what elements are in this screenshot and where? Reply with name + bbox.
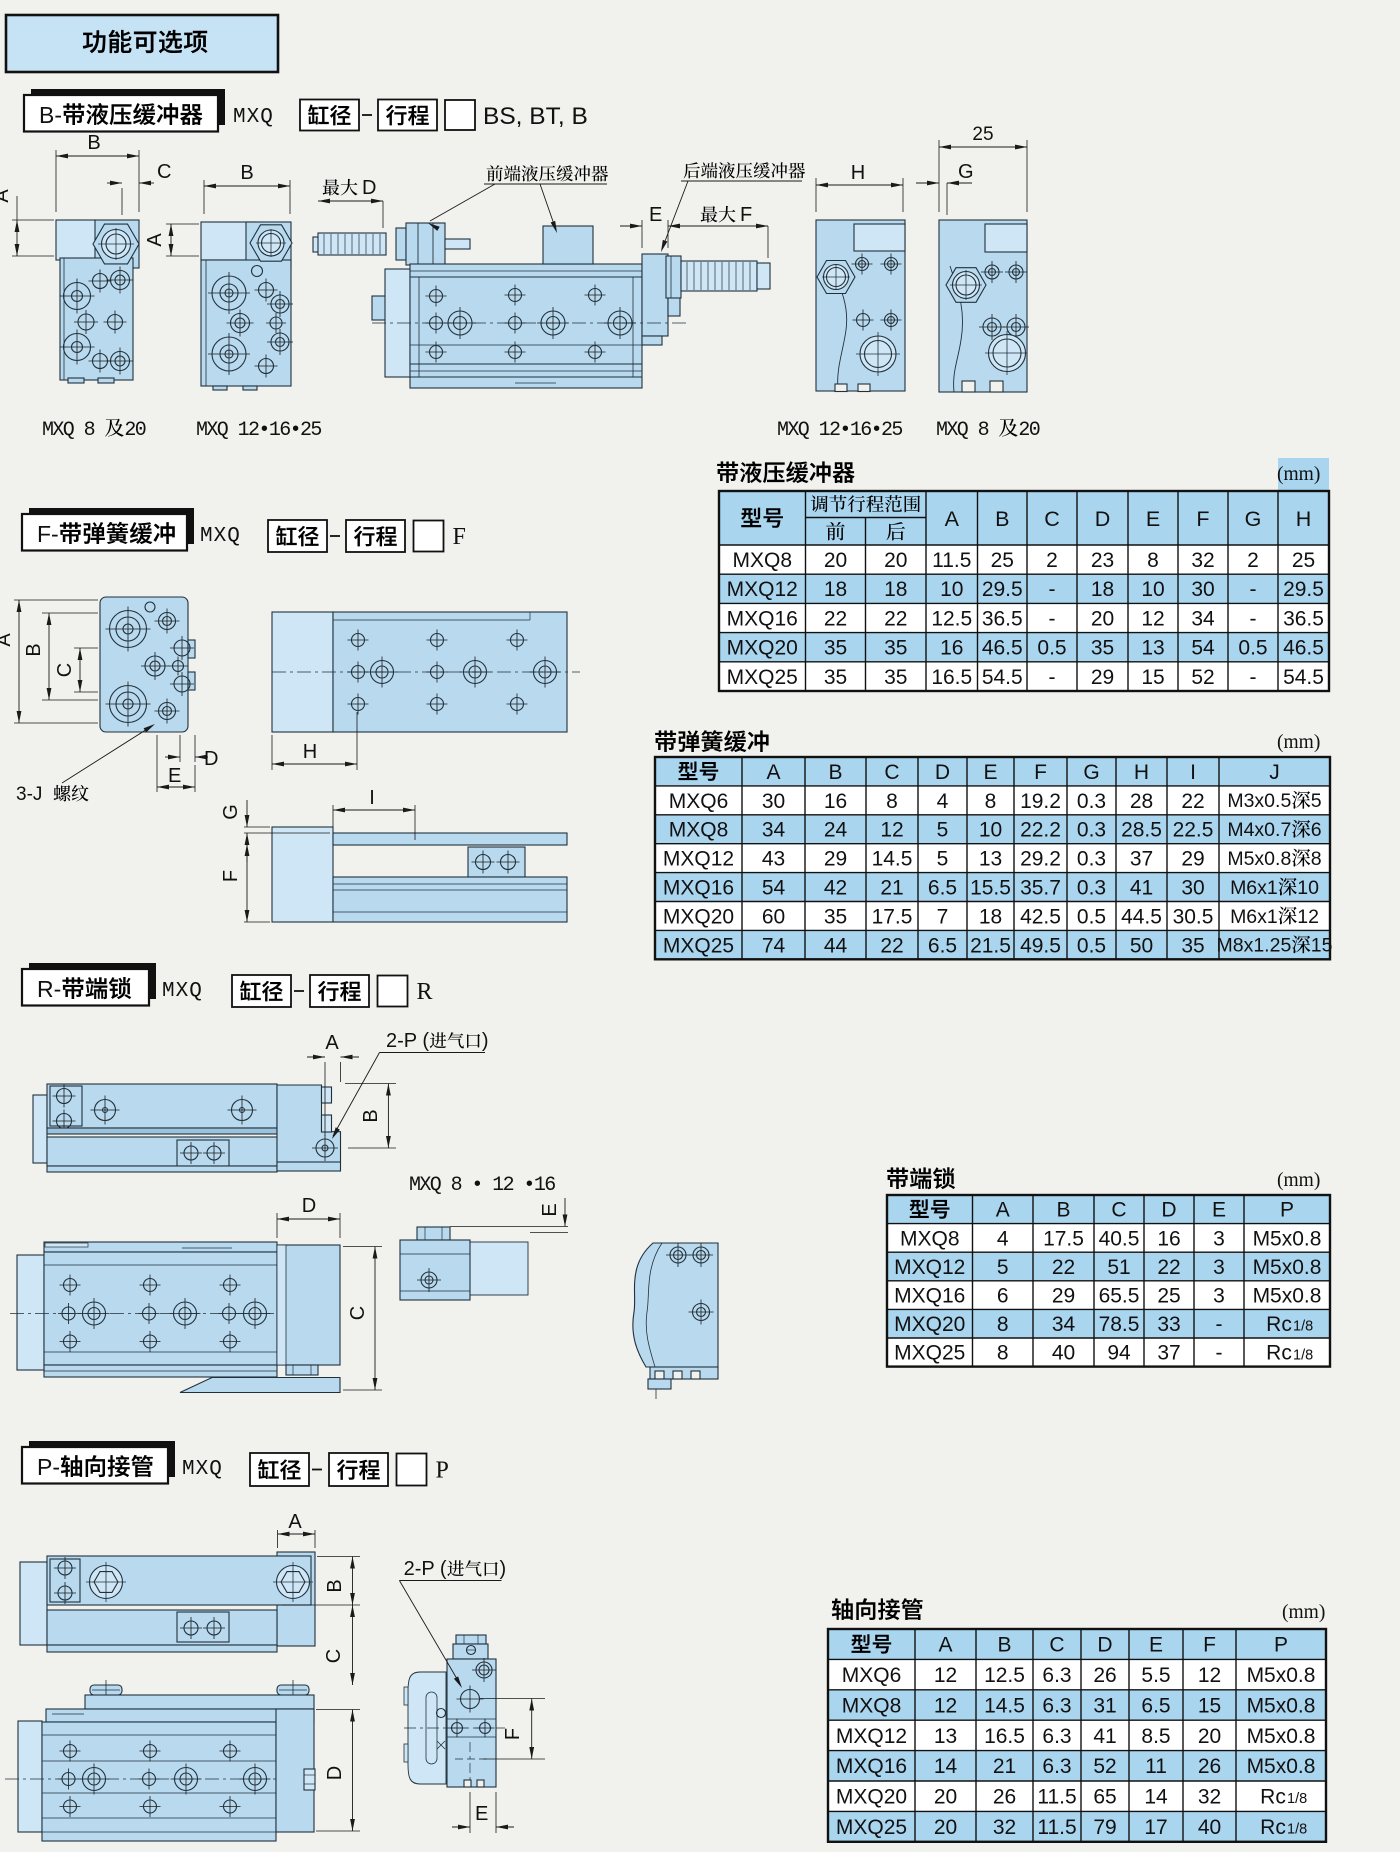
svg-text:16: 16 [1157,1227,1180,1250]
svg-text:8: 8 [985,790,997,813]
svg-text:20: 20 [824,549,847,572]
svg-text:42.5: 42.5 [1020,905,1061,928]
svg-text:MXQ8: MXQ8 [732,549,792,572]
svg-text:H: H [303,741,317,763]
svg-text:0.3: 0.3 [1077,819,1106,842]
svg-text:B: B [87,132,100,154]
svg-text:46.5: 46.5 [1283,637,1324,660]
svg-text:A: A [0,189,13,203]
svg-text:M4x0.7: M4x0.7 [1227,819,1291,841]
svg-text:B: B [1056,1199,1070,1222]
svg-text:D: D [1161,1199,1176,1222]
svg-text:M8x1.25: M8x1.25 [1217,935,1292,957]
svg-text:24: 24 [824,819,848,842]
svg-text:0.5: 0.5 [1037,637,1066,660]
svg-text:18: 18 [979,905,1002,928]
svg-text:30.5: 30.5 [1173,905,1214,928]
svg-text:28: 28 [1130,790,1153,813]
svg-text:42: 42 [824,876,847,899]
svg-text:5: 5 [1311,790,1322,812]
svg-text:MXQ: MXQ [162,980,203,1003]
svg-text:A: A [766,761,780,784]
svg-text:D: D [324,1766,346,1780]
svg-text:1/8: 1/8 [1287,1822,1307,1838]
svg-text:26: 26 [1198,1755,1221,1778]
svg-text:49.5: 49.5 [1020,934,1061,957]
svg-text:MXQ12: MXQ12 [894,1256,965,1279]
svg-text:13: 13 [1141,637,1164,660]
svg-text:MXQ 8 • 12 •16: MXQ 8 • 12 •16 [409,1174,555,1197]
svg-text:35.7: 35.7 [1020,876,1061,899]
svg-text:79: 79 [1093,1816,1116,1839]
svg-text:A: A [0,633,15,647]
svg-text:C: C [1111,1199,1126,1222]
svg-text:5.5: 5.5 [1141,1664,1170,1687]
svg-text:R-: R- [37,976,61,1002]
svg-text:16.5: 16.5 [931,666,972,689]
svg-text:2-P (: 2-P ( [404,1558,447,1580]
svg-text:41: 41 [1130,876,1153,899]
svg-text:17: 17 [1144,1816,1167,1839]
svg-text:MXQ25: MXQ25 [727,666,798,689]
svg-text:22: 22 [1181,790,1204,813]
svg-text:H: H [851,162,865,184]
svg-text:MXQ16: MXQ16 [894,1285,965,1308]
svg-text:32: 32 [1191,549,1214,572]
svg-text:10: 10 [1297,877,1319,899]
svg-text:E: E [475,1803,488,1825]
svg-text:MXQ6: MXQ6 [842,1664,902,1687]
svg-text:5: 5 [997,1256,1009,1279]
svg-text:(mm): (mm) [1282,1602,1325,1623]
svg-text:40: 40 [1052,1342,1075,1365]
svg-text:16: 16 [940,637,963,660]
svg-text:M5x0.8: M5x0.8 [1253,1227,1322,1250]
svg-text:11.5: 11.5 [1037,1786,1076,1809]
svg-text:MXQ16: MXQ16 [727,607,798,630]
svg-text:12: 12 [1141,607,1164,630]
svg-text:D: D [1097,1634,1112,1657]
svg-text:30: 30 [1181,876,1204,899]
svg-text:F: F [1203,1634,1216,1657]
svg-text:A: A [938,1634,952,1657]
svg-text:MXQ 8: MXQ 8 [42,419,95,442]
svg-text:F: F [740,204,752,226]
svg-text:D: D [204,748,218,770]
svg-text:12.5: 12.5 [984,1664,1025,1687]
svg-text:-: - [1250,666,1257,689]
svg-text:G: G [1083,761,1099,784]
svg-text:29: 29 [1181,848,1204,871]
svg-text:29: 29 [1052,1285,1075,1308]
svg-text:20: 20 [934,1816,957,1839]
svg-text:10: 10 [940,578,963,601]
svg-text:4: 4 [997,1227,1009,1250]
svg-text:44: 44 [824,934,848,957]
svg-text:2: 2 [1046,549,1058,572]
svg-text:51: 51 [1107,1256,1130,1279]
svg-text:20: 20 [884,549,907,572]
svg-text:MXQ20: MXQ20 [663,905,734,928]
svg-text:C: C [157,161,171,183]
svg-text:MXQ: MXQ [233,106,274,129]
svg-text:32: 32 [993,1816,1016,1839]
svg-text:10: 10 [1141,578,1164,601]
svg-text:M5x0.8: M5x0.8 [1247,1694,1316,1717]
svg-text:0.3: 0.3 [1077,790,1106,813]
svg-text:MXQ25: MXQ25 [663,934,734,957]
svg-text:60: 60 [762,905,785,928]
svg-text:18: 18 [824,578,847,601]
svg-text:A: A [288,1511,302,1533]
svg-text:2-P (: 2-P ( [386,1030,429,1052]
svg-text:F: F [1196,507,1209,531]
svg-text:M3x0.5: M3x0.5 [1227,790,1291,812]
svg-text:): ) [482,1030,489,1052]
svg-text:15: 15 [1141,666,1164,689]
svg-text:54.5: 54.5 [982,666,1023,689]
svg-text:20: 20 [1091,607,1114,630]
svg-text:22: 22 [1052,1256,1075,1279]
svg-text:D: D [1095,507,1111,531]
svg-text:33: 33 [1157,1313,1180,1336]
svg-text:E: E [1212,1199,1226,1222]
svg-text:B: B [828,761,842,784]
svg-text:A: A [144,233,166,247]
svg-text:25: 25 [1157,1285,1180,1308]
svg-text:19.2: 19.2 [1020,790,1061,813]
svg-text:28.5: 28.5 [1121,819,1162,842]
svg-text:6.3: 6.3 [1042,1694,1071,1717]
svg-text:H: H [1296,507,1312,531]
svg-text:1/8: 1/8 [1293,1347,1313,1363]
svg-text:-: - [1049,666,1056,689]
svg-text:25: 25 [1292,549,1315,572]
svg-text:8: 8 [997,1342,1009,1365]
svg-text:18: 18 [884,578,907,601]
svg-text:10: 10 [979,819,1002,842]
svg-text:17.5: 17.5 [1043,1227,1084,1250]
svg-text:21: 21 [880,876,903,899]
svg-text:29: 29 [1091,666,1114,689]
svg-text:12.5: 12.5 [931,607,972,630]
svg-text:-: - [1216,1342,1223,1365]
svg-text:MXQ20: MXQ20 [727,637,798,660]
svg-text:F: F [453,524,466,550]
svg-text:E: E [539,1203,561,1216]
svg-text:31: 31 [1093,1694,1116,1717]
svg-text:54.5: 54.5 [1283,666,1324,689]
svg-text:1/8: 1/8 [1293,1319,1313,1335]
svg-text:65.5: 65.5 [1099,1285,1140,1308]
svg-text:3: 3 [1213,1227,1225,1250]
svg-text:F-: F- [37,521,59,547]
svg-text:11.5: 11.5 [1037,1816,1076,1839]
svg-text:14: 14 [934,1755,958,1778]
svg-text:20: 20 [124,419,145,442]
svg-text:43: 43 [762,848,785,871]
svg-text:40.5: 40.5 [1099,1227,1140,1250]
svg-text:0.5: 0.5 [1077,934,1106,957]
svg-text:26: 26 [993,1786,1016,1809]
svg-text:16.5: 16.5 [984,1725,1025,1748]
svg-text:65: 65 [1093,1786,1116,1809]
svg-text:R: R [417,979,433,1005]
svg-text:M5x0.8: M5x0.8 [1253,1256,1322,1279]
svg-text:8: 8 [997,1313,1009,1336]
svg-text:MXQ 8: MXQ 8 [936,419,989,442]
svg-text:0.5: 0.5 [1077,905,1106,928]
svg-text:BS, BT, B: BS, BT, B [483,103,588,130]
svg-text:36.5: 36.5 [1283,607,1324,630]
svg-text:C: C [54,663,76,677]
svg-text:P: P [1274,1634,1288,1657]
svg-text:14.5: 14.5 [984,1694,1025,1717]
svg-text:35: 35 [884,666,907,689]
svg-text:MXQ8: MXQ8 [842,1694,902,1717]
svg-text:8: 8 [1147,549,1159,572]
svg-text:6.3: 6.3 [1042,1664,1071,1687]
svg-text:MXQ12: MXQ12 [727,578,798,601]
svg-text:6.5: 6.5 [928,934,957,957]
svg-text:5: 5 [937,819,949,842]
svg-text:35: 35 [824,905,847,928]
svg-text:32: 32 [1198,1786,1221,1809]
svg-text:12: 12 [934,1694,957,1717]
svg-text:35: 35 [884,637,907,660]
svg-text:21.5: 21.5 [970,934,1011,957]
svg-text:C: C [347,1306,369,1320]
svg-text:13: 13 [934,1725,957,1748]
svg-text:25: 25 [991,549,1014,572]
svg-text:6: 6 [997,1285,1009,1308]
svg-text:MXQ25: MXQ25 [836,1816,907,1839]
svg-text:E: E [1149,1634,1163,1657]
svg-text:B: B [324,1579,346,1592]
svg-text:MXQ16: MXQ16 [663,876,734,899]
svg-text:Rc: Rc [1266,1313,1292,1336]
svg-text:8.5: 8.5 [1141,1725,1170,1748]
svg-text:M5x0.8: M5x0.8 [1247,1725,1316,1748]
svg-text:34: 34 [1191,607,1215,630]
svg-text:18: 18 [1091,578,1114,601]
svg-text:B-: B- [39,102,62,128]
svg-text:35: 35 [1181,934,1204,957]
svg-text:94: 94 [1107,1342,1131,1365]
svg-text:12: 12 [880,819,903,842]
svg-text:54: 54 [1191,637,1215,660]
svg-text:H: H [1134,761,1149,784]
svg-text:74: 74 [762,934,786,957]
svg-text:25: 25 [972,124,993,145]
svg-text:-: - [1049,607,1056,630]
svg-text:6.3: 6.3 [1042,1725,1071,1748]
svg-text:26: 26 [1093,1664,1116,1687]
svg-text:20: 20 [934,1786,957,1809]
svg-text:MXQ: MXQ [182,1458,223,1481]
svg-text:C: C [1044,507,1060,531]
svg-text:0.3: 0.3 [1077,876,1106,899]
svg-text:G: G [1245,507,1262,531]
svg-text:E: E [649,204,662,226]
svg-text:29.5: 29.5 [982,578,1023,601]
svg-text:35: 35 [1091,637,1114,660]
svg-text:29: 29 [824,848,847,871]
svg-text:M5x0.8: M5x0.8 [1247,1664,1316,1687]
svg-text:B: B [240,162,253,184]
svg-text:P: P [436,1458,449,1484]
svg-text:13: 13 [979,848,1002,871]
svg-text:B: B [997,1634,1011,1657]
svg-text:30: 30 [1191,578,1214,601]
svg-text:11: 11 [1145,1755,1167,1778]
svg-text:40: 40 [1198,1816,1221,1839]
svg-text:A: A [945,507,960,531]
svg-text:G: G [220,804,242,820]
svg-text:C: C [1049,1634,1064,1657]
svg-text:29.5: 29.5 [1283,578,1324,601]
svg-text:M5x0.8: M5x0.8 [1253,1285,1322,1308]
svg-text:MXQ 12•16•25: MXQ 12•16•25 [777,419,902,442]
svg-text:14.5: 14.5 [872,848,913,871]
svg-text:34: 34 [1052,1313,1076,1336]
svg-text:M5x0.8: M5x0.8 [1227,848,1291,870]
svg-text:2: 2 [1247,549,1259,572]
svg-text:0.5: 0.5 [1238,637,1267,660]
svg-text:D: D [302,1195,316,1217]
svg-text:-: - [1049,578,1056,601]
svg-text:-: - [1250,578,1257,601]
svg-text:6.5: 6.5 [928,876,957,899]
svg-text:A: A [325,1032,339,1054]
svg-text:I: I [1190,761,1196,784]
svg-text:8: 8 [886,790,898,813]
svg-text:12: 12 [934,1664,957,1687]
svg-text:MXQ25: MXQ25 [894,1342,965,1365]
svg-text:E: E [1146,507,1160,531]
svg-text:MXQ8: MXQ8 [900,1227,960,1250]
svg-text:3-J: 3-J [16,784,42,805]
svg-text:23: 23 [1091,549,1114,572]
svg-text:MXQ16: MXQ16 [836,1755,907,1778]
svg-text:30: 30 [762,790,785,813]
svg-text:54: 54 [762,876,786,899]
svg-text:Rc: Rc [1266,1342,1292,1365]
svg-text:6: 6 [1311,819,1322,841]
svg-text:46.5: 46.5 [982,637,1023,660]
svg-text:22: 22 [880,934,903,957]
svg-text:I: I [369,787,375,809]
svg-text:Rc: Rc [1260,1786,1286,1809]
svg-text:E: E [168,765,181,787]
svg-text:MXQ12: MXQ12 [836,1725,907,1748]
svg-text:6.5: 6.5 [1141,1694,1170,1717]
svg-text:B: B [360,1109,382,1122]
svg-text:MXQ6: MXQ6 [669,790,729,813]
svg-text:): ) [499,1558,506,1580]
svg-text:1/8: 1/8 [1287,1791,1307,1807]
svg-text:3: 3 [1213,1285,1225,1308]
svg-text:(mm): (mm) [1277,1170,1320,1191]
svg-text:MXQ20: MXQ20 [894,1313,965,1336]
svg-text:16: 16 [824,790,847,813]
svg-text:22: 22 [1157,1256,1180,1279]
svg-text:21: 21 [993,1755,1016,1778]
svg-text:37: 37 [1157,1342,1180,1365]
svg-text:MXQ20: MXQ20 [836,1786,907,1809]
svg-text:20: 20 [1018,419,1039,442]
svg-text:50: 50 [1130,934,1153,957]
svg-text:(mm): (mm) [1277,464,1320,485]
svg-text:44.5: 44.5 [1121,905,1162,928]
svg-text:11.5: 11.5 [932,549,971,572]
svg-text:C: C [884,761,899,784]
svg-text:41: 41 [1093,1725,1116,1748]
svg-text:22.5: 22.5 [1173,819,1214,842]
svg-text:M6x1: M6x1 [1230,906,1278,928]
svg-text:22: 22 [884,607,907,630]
svg-text:MXQ12: MXQ12 [663,848,734,871]
svg-text:12: 12 [1297,906,1319,928]
svg-text:7: 7 [937,905,949,928]
svg-text:20: 20 [1198,1725,1221,1748]
svg-text:29.2: 29.2 [1020,848,1061,871]
svg-text:15: 15 [1311,935,1333,957]
svg-text:Rc: Rc [1260,1816,1286,1839]
svg-text:52: 52 [1191,666,1214,689]
svg-text:J: J [1269,761,1280,784]
svg-text:22: 22 [824,607,847,630]
svg-text:MXQ 12•16•25: MXQ 12•16•25 [196,419,321,442]
svg-text:M6x1: M6x1 [1230,877,1278,899]
svg-text:8: 8 [1311,848,1322,870]
svg-text:-: - [1250,607,1257,630]
svg-text:M5x0.8: M5x0.8 [1247,1755,1316,1778]
svg-text:3: 3 [1213,1256,1225,1279]
svg-text:52: 52 [1093,1755,1116,1778]
svg-text:B: B [23,643,45,656]
svg-text:F: F [220,870,242,882]
svg-text:36.5: 36.5 [982,607,1023,630]
svg-text:(mm): (mm) [1277,732,1320,753]
svg-text:78.5: 78.5 [1099,1313,1140,1336]
svg-text:P: P [1280,1199,1294,1222]
svg-text:35: 35 [824,666,847,689]
svg-text:E: E [983,761,997,784]
svg-text:MXQ: MXQ [200,525,241,548]
svg-text:0.3: 0.3 [1077,848,1106,871]
svg-text:F: F [502,1728,524,1740]
svg-text:G: G [958,161,974,183]
svg-text:5: 5 [937,848,949,871]
svg-text:37: 37 [1130,848,1153,871]
svg-text:P-: P- [37,1454,60,1480]
svg-text:D: D [362,177,376,199]
svg-text:34: 34 [762,819,786,842]
svg-text:15.5: 15.5 [970,876,1011,899]
svg-text:6.3: 6.3 [1042,1755,1071,1778]
svg-text:D: D [935,761,950,784]
svg-text:-: - [1216,1313,1223,1336]
svg-text:17.5: 17.5 [872,905,913,928]
svg-text:22.2: 22.2 [1020,819,1061,842]
svg-text:4: 4 [937,790,949,813]
svg-text:F: F [1034,761,1047,784]
svg-text:MXQ8: MXQ8 [669,819,729,842]
svg-text:B: B [995,507,1009,531]
svg-text:14: 14 [1144,1786,1168,1809]
svg-text:C: C [323,1649,345,1663]
